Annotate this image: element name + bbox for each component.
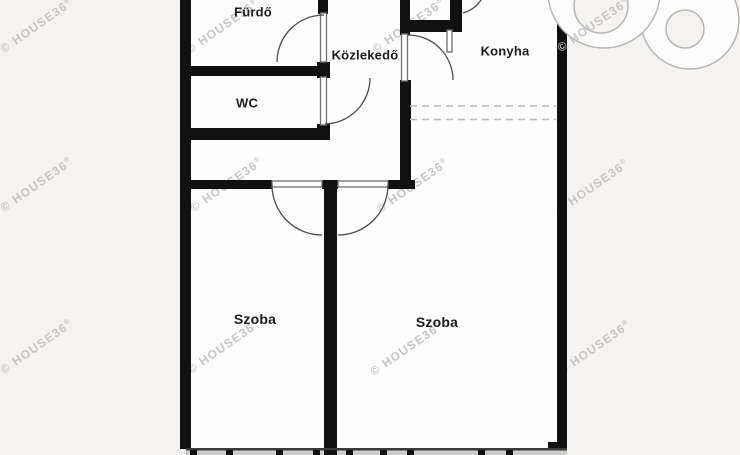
floorplan-image: © HOUSE36® © HOUSE36® © HOUSE36® © HOUSE… [0, 0, 740, 455]
logo-circle-right-inner [666, 10, 704, 48]
house36-logo-icon [0, 0, 740, 455]
